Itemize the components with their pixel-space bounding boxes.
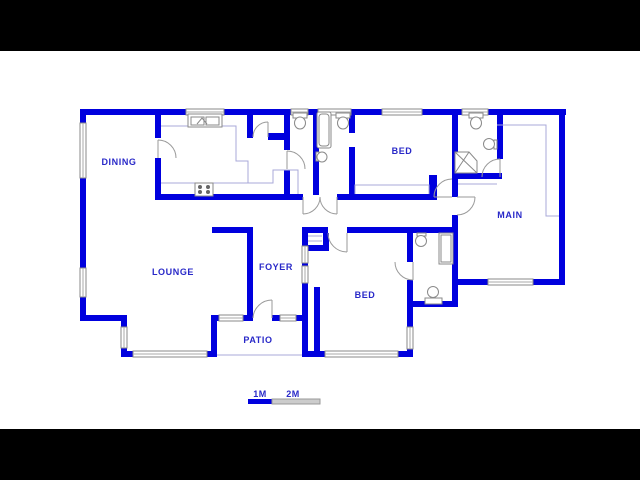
door-swing-icon bbox=[395, 262, 413, 280]
scale-bar-empty-segment bbox=[272, 399, 320, 404]
bathtub-icon bbox=[317, 112, 331, 148]
shower-icon bbox=[439, 233, 453, 264]
door-swing-icon bbox=[253, 300, 272, 318]
scale-label-1m: 1M bbox=[253, 389, 267, 399]
door-swings bbox=[158, 122, 500, 318]
closet-shelf-lines bbox=[308, 236, 322, 241]
door-swing-icon bbox=[303, 197, 320, 214]
basin-icon bbox=[416, 233, 427, 247]
fixtures bbox=[188, 112, 497, 304]
room-label-bed-bottom: BED bbox=[355, 290, 376, 300]
toilet-icon bbox=[469, 113, 483, 129]
basin-icon bbox=[484, 139, 498, 150]
window bbox=[80, 123, 86, 178]
toilet-icon bbox=[293, 113, 307, 129]
stove-icon bbox=[195, 183, 213, 196]
toilet-icon bbox=[336, 113, 350, 129]
main-wardrobe-line bbox=[497, 125, 559, 216]
window bbox=[302, 266, 308, 283]
toilet-icon bbox=[425, 287, 442, 305]
floor-plan-drawing: DINING LOUNGE FOYER PATIO BED BED MAIN 1… bbox=[0, 0, 640, 480]
window bbox=[280, 315, 296, 321]
bed-wardrobe-line bbox=[355, 185, 429, 194]
room-label-patio: PATIO bbox=[243, 335, 272, 345]
window bbox=[121, 327, 127, 348]
shower-icon bbox=[455, 152, 477, 173]
scale-label-2m: 2M bbox=[286, 389, 300, 399]
room-label-lounge: LOUNGE bbox=[152, 267, 194, 277]
window bbox=[133, 351, 207, 357]
window bbox=[488, 279, 533, 285]
window bbox=[80, 268, 86, 297]
door-swing-icon bbox=[158, 140, 176, 158]
kitchen-sink-icon bbox=[188, 114, 222, 127]
window bbox=[325, 351, 398, 357]
scale-bar: 1M 2M bbox=[248, 389, 320, 404]
window bbox=[382, 109, 422, 115]
room-label-dining: DINING bbox=[101, 157, 136, 167]
window bbox=[407, 327, 413, 349]
room-label-main: MAIN bbox=[497, 210, 522, 220]
scale-bar-filled-segment bbox=[248, 399, 272, 404]
window bbox=[302, 246, 308, 263]
room-label-bed-top: BED bbox=[392, 146, 413, 156]
door-swing-icon bbox=[457, 197, 475, 215]
floor-plan-image: DINING LOUNGE FOYER PATIO BED BED MAIN 1… bbox=[0, 0, 640, 480]
basin-icon bbox=[316, 152, 327, 162]
door-swing-icon bbox=[287, 151, 305, 169]
room-label-foyer: FOYER bbox=[259, 262, 293, 272]
door-swing-icon bbox=[320, 197, 337, 214]
window bbox=[219, 315, 243, 321]
door-swing-icon bbox=[328, 233, 347, 252]
door-swing-icon bbox=[253, 122, 268, 137]
